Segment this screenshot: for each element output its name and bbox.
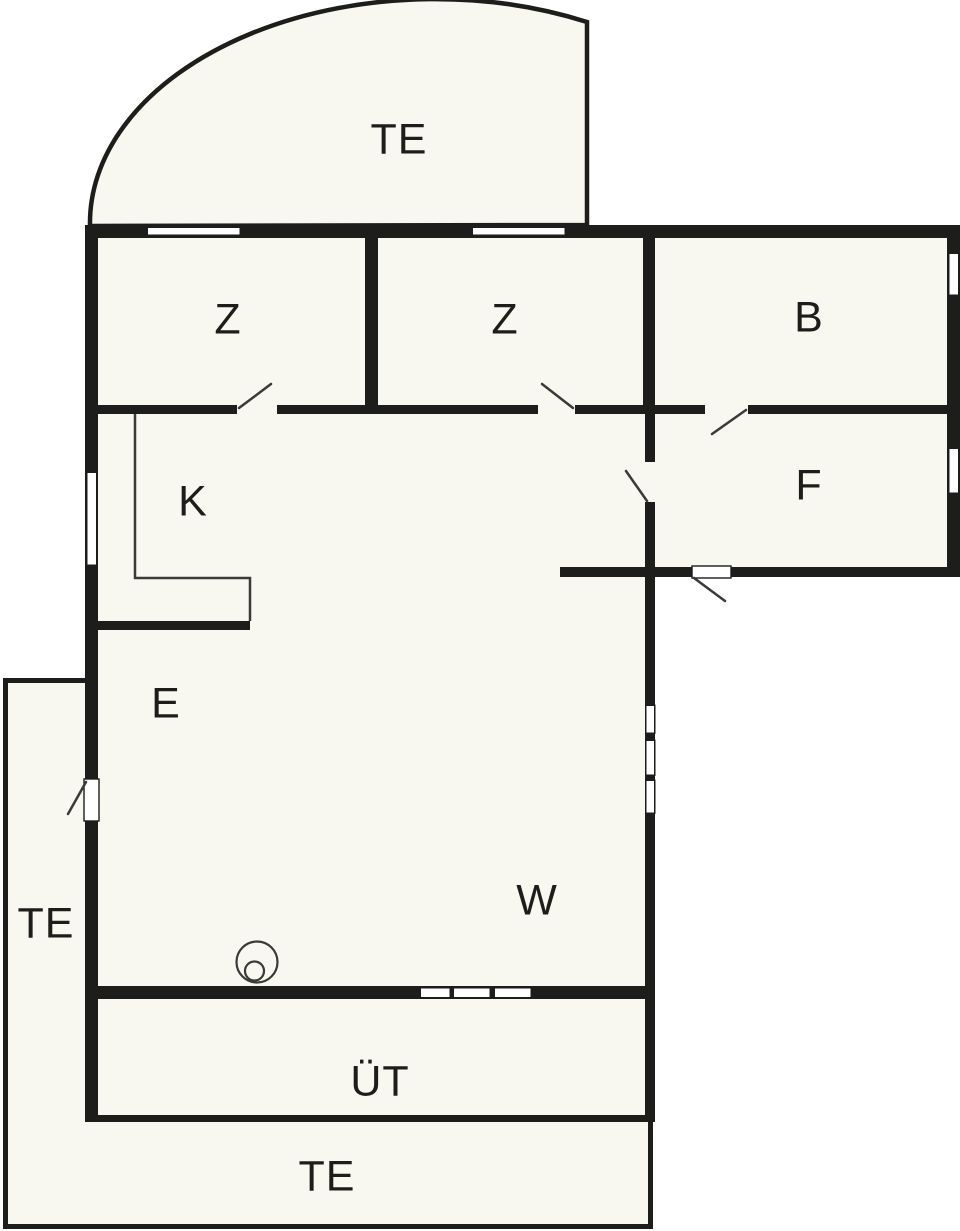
wall-bedrooms-south-a	[85, 405, 237, 414]
window-living-east-3	[646, 780, 655, 813]
door-main-entrance	[692, 566, 731, 578]
window-living-south-3	[494, 988, 531, 998]
floor-plan-drawing	[0, 0, 960, 1231]
wall-living-south	[85, 986, 655, 999]
window-hallway-east	[949, 448, 959, 493]
terrace-bottom-edge	[3, 1224, 653, 1229]
wall-hallway-south-a	[560, 567, 692, 577]
terrace-top-shape	[90, 0, 587, 226]
window-kitchen-west	[87, 472, 97, 565]
label-kitchen: K	[178, 481, 208, 524]
label-terrace-top: TE	[371, 119, 428, 162]
label-entry: E	[151, 683, 181, 726]
label-bedroom-1: Z	[214, 299, 241, 342]
door-entry-west	[84, 779, 99, 821]
window-living-south-2	[453, 988, 490, 998]
terrace-bottom-right-edge	[648, 1122, 653, 1229]
window-bedroom2-north	[472, 227, 565, 235]
window-bedroom1-north	[147, 227, 240, 235]
label-terrace-left: TE	[18, 903, 75, 946]
label-hallway: F	[795, 465, 822, 508]
window-bathroom-east	[949, 253, 959, 295]
wall-bedroom1-bedroom2	[365, 237, 378, 405]
wall-bathroom-south	[748, 405, 960, 414]
window-living-east-2	[646, 740, 655, 775]
wall-hallway-west-upper	[645, 414, 655, 462]
window-living-east-1	[646, 705, 655, 733]
label-terrace-bottom: TE	[299, 1156, 356, 1199]
terrace-top-outline	[90, 0, 587, 226]
wall-bedroom2-bathroom	[643, 237, 655, 405]
door-leaf-main-entrance	[694, 578, 725, 601]
floor-living-block	[85, 405, 655, 1122]
wall-covered-terrace-south	[85, 1115, 655, 1122]
terrace-left-top-edge	[3, 678, 85, 683]
label-living-room: W	[516, 880, 558, 923]
label-covered-terrace: ÜT	[350, 1061, 409, 1104]
wall-bedrooms-south-c	[575, 405, 705, 414]
terrace-left-edge	[3, 678, 8, 1229]
wall-hallway-south-b	[731, 567, 960, 577]
window-living-south-1	[420, 988, 450, 998]
wall-kitchen-stub	[97, 621, 250, 630]
floor-plan: TE Z Z B F K E W ÜT TE TE	[0, 0, 960, 1231]
label-bedroom-2: Z	[491, 299, 518, 342]
label-bathroom: B	[794, 297, 824, 340]
wall-bedrooms-south-b	[277, 405, 538, 414]
